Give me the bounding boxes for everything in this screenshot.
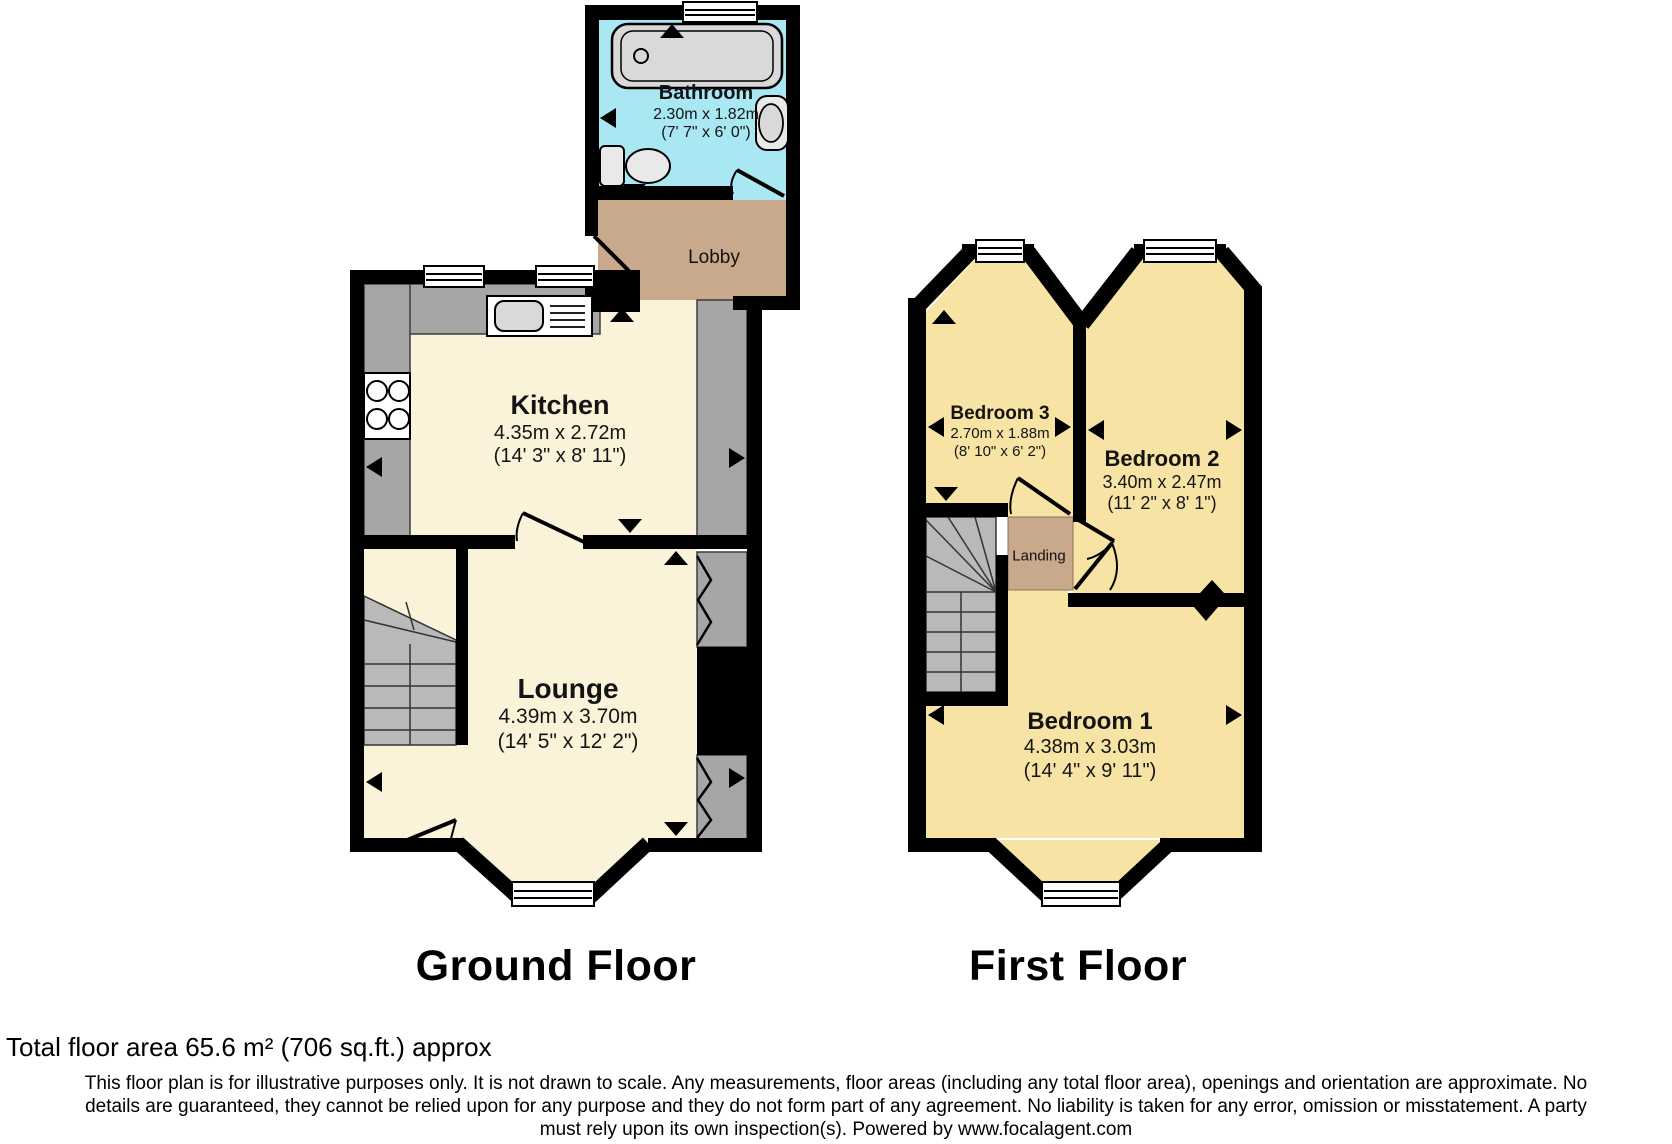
bedroom1-metric: 4.38m x 3.03m (1024, 736, 1157, 760)
lobby-label: Lobby (688, 247, 740, 269)
ground-floor-title: Ground Floor (416, 942, 697, 991)
kitchen-imperial: (14' 3" x 8' 11") (494, 445, 627, 469)
bedroom2-name: Bedroom 2 (1102, 446, 1221, 472)
bedroom2-floor (1086, 256, 1244, 593)
lounge-imperial: (14' 5" x 12' 2") (498, 730, 639, 755)
bedroom3-label: Bedroom 3 2.70m x 1.88m (8' 10" x 6' 2") (950, 403, 1049, 461)
bathtub-icon (612, 24, 782, 88)
kitchen-name: Kitchen (494, 390, 627, 422)
first-floor-plan (908, 240, 1262, 906)
bathroom-metric: 2.30m x 1.82m (653, 106, 759, 125)
kitchen-label: Kitchen 4.35m x 2.72m (14' 3" x 8' 11") (494, 390, 627, 469)
disclaimer-line-1: This floor plan is for illustrative purp… (0, 1072, 1672, 1095)
sink-icon (756, 96, 788, 150)
bathroom-name: Bathroom (653, 82, 759, 106)
first-floor-title: First Floor (969, 942, 1187, 991)
kitchen-sink-icon (487, 296, 592, 336)
lounge-label: Lounge 4.39m x 3.70m (14' 5" x 12' 2") (498, 672, 639, 755)
floorplan-page: { "floors": { "ground": {"label": "Groun… (0, 0, 1672, 1144)
bedroom3-name: Bedroom 3 (950, 403, 1049, 425)
bedroom2-metric: 3.40m x 2.47m (1102, 472, 1221, 493)
kitchen-metric: 4.35m x 2.72m (494, 422, 627, 446)
bedroom3-imperial: (8' 10" x 6' 2") (950, 443, 1049, 461)
bedroom3-metric: 2.70m x 1.88m (950, 425, 1049, 443)
stairs-first (926, 517, 996, 692)
bedroom2-label: Bedroom 2 3.40m x 2.47m (11' 2" x 8' 1") (1102, 446, 1221, 514)
bedroom1-name: Bedroom 1 (1024, 708, 1157, 736)
disclaimer-line-3: must rely upon its own inspection(s). Po… (0, 1118, 1672, 1141)
toilet-icon (600, 146, 670, 186)
bathroom-label: Bathroom 2.30m x 1.82m (7' 7" x 6' 0") (653, 82, 759, 143)
disclaimer-text: This floor plan is for illustrative purp… (0, 1072, 1672, 1141)
bathroom-imperial: (7' 7" x 6' 0") (653, 124, 759, 143)
bedroom2-imperial: (11' 2" x 8' 1") (1102, 493, 1221, 514)
floorplan-drawing (0, 0, 1672, 1144)
bedroom1-imperial: (14' 4" x 9' 11") (1024, 760, 1157, 784)
lounge-name: Lounge (498, 672, 639, 705)
lounge-metric: 4.39m x 3.70m (498, 705, 639, 730)
landing-label: Landing (1012, 548, 1065, 565)
hob-icon (364, 373, 410, 439)
bedroom1-label: Bedroom 1 4.38m x 3.03m (14' 4" x 9' 11"… (1024, 708, 1157, 784)
side-recess (697, 300, 747, 540)
disclaimer-line-2: details are guaranteed, they cannot be r… (0, 1095, 1672, 1118)
total-floor-area: Total floor area 65.6 m² (706 sq.ft.) ap… (6, 1032, 492, 1063)
